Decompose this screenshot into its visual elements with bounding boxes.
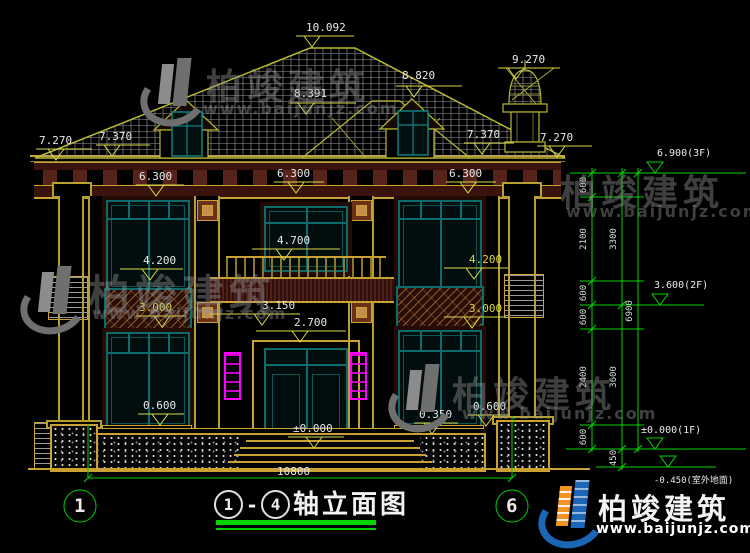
dim-6900: 6900 xyxy=(624,296,636,326)
watermark-url: www.baijunjz.com xyxy=(566,202,750,221)
brand-url: www.baijunjz.com xyxy=(596,521,750,537)
elev-label-7370-right: 7.370 xyxy=(467,129,500,141)
watermark-url: www.baijunjz.com xyxy=(92,304,287,323)
drawing-title: 1 - 4 轴立面图 xyxy=(214,490,409,519)
dim-600: 600 xyxy=(578,305,590,329)
elev-label-2700: 2.700 xyxy=(294,317,327,329)
title-axis-from: 1 xyxy=(214,490,243,519)
elev-label-9270: 9.270 xyxy=(512,54,545,66)
dim-600: 600 xyxy=(578,281,590,305)
title-underline-thin xyxy=(216,528,376,530)
brand-logo xyxy=(538,480,598,542)
elev-label-3000-right: 3.000 xyxy=(469,303,502,315)
watermark-url: www.baijunjz.com xyxy=(203,99,398,118)
elev-label-10092: 10.092 xyxy=(306,22,346,34)
watermark-logo xyxy=(140,58,200,120)
title-axis-to: 4 xyxy=(261,490,290,519)
title-dash: - xyxy=(246,493,258,517)
watermark-logo xyxy=(20,266,80,328)
overall-width-dim: 10800 xyxy=(277,466,310,478)
level-label-2f: 3.600(2F) xyxy=(654,280,708,291)
elev-label-6300-center: 6.300 xyxy=(277,168,310,180)
dim-2100: 2100 xyxy=(578,224,590,254)
dim-600: 600 xyxy=(578,425,590,449)
title-text: 轴立面图 xyxy=(293,491,409,519)
elev-label-6300-left: 6.300 xyxy=(139,171,172,183)
elev-label-7370-left: 7.370 xyxy=(99,131,132,143)
watermark-logo xyxy=(388,364,448,426)
dim-3300: 3300 xyxy=(608,224,620,254)
cad-elevation-drawing: 10.092 9.270 8.820 8.391 7.370 7.270 7.3… xyxy=(0,0,750,553)
elev-label-0000: ±0.000 xyxy=(293,423,333,435)
elev-label-7270-left: 7.270 xyxy=(39,135,72,147)
elev-label-4700: 4.700 xyxy=(277,235,310,247)
dim-450: 450 xyxy=(608,446,620,470)
level-label-3f: 6.900(3F) xyxy=(657,148,711,159)
elev-label-4200-right: 4.200 xyxy=(469,254,502,266)
elev-label-0600-left: 0.600 xyxy=(143,400,176,412)
title-underline-thick xyxy=(216,520,376,525)
elev-label-7270-right: 7.270 xyxy=(540,132,573,144)
elev-label-8820: 8.820 xyxy=(402,70,435,82)
axis-bubble-left: 1 xyxy=(74,495,85,517)
elev-label-6300-right: 6.300 xyxy=(449,168,482,180)
axis-bubble-right: 6 xyxy=(506,495,517,517)
watermark-url: www.baijunjz.com xyxy=(462,404,657,423)
level-label-1f: ±0.000(1F) xyxy=(641,425,701,436)
